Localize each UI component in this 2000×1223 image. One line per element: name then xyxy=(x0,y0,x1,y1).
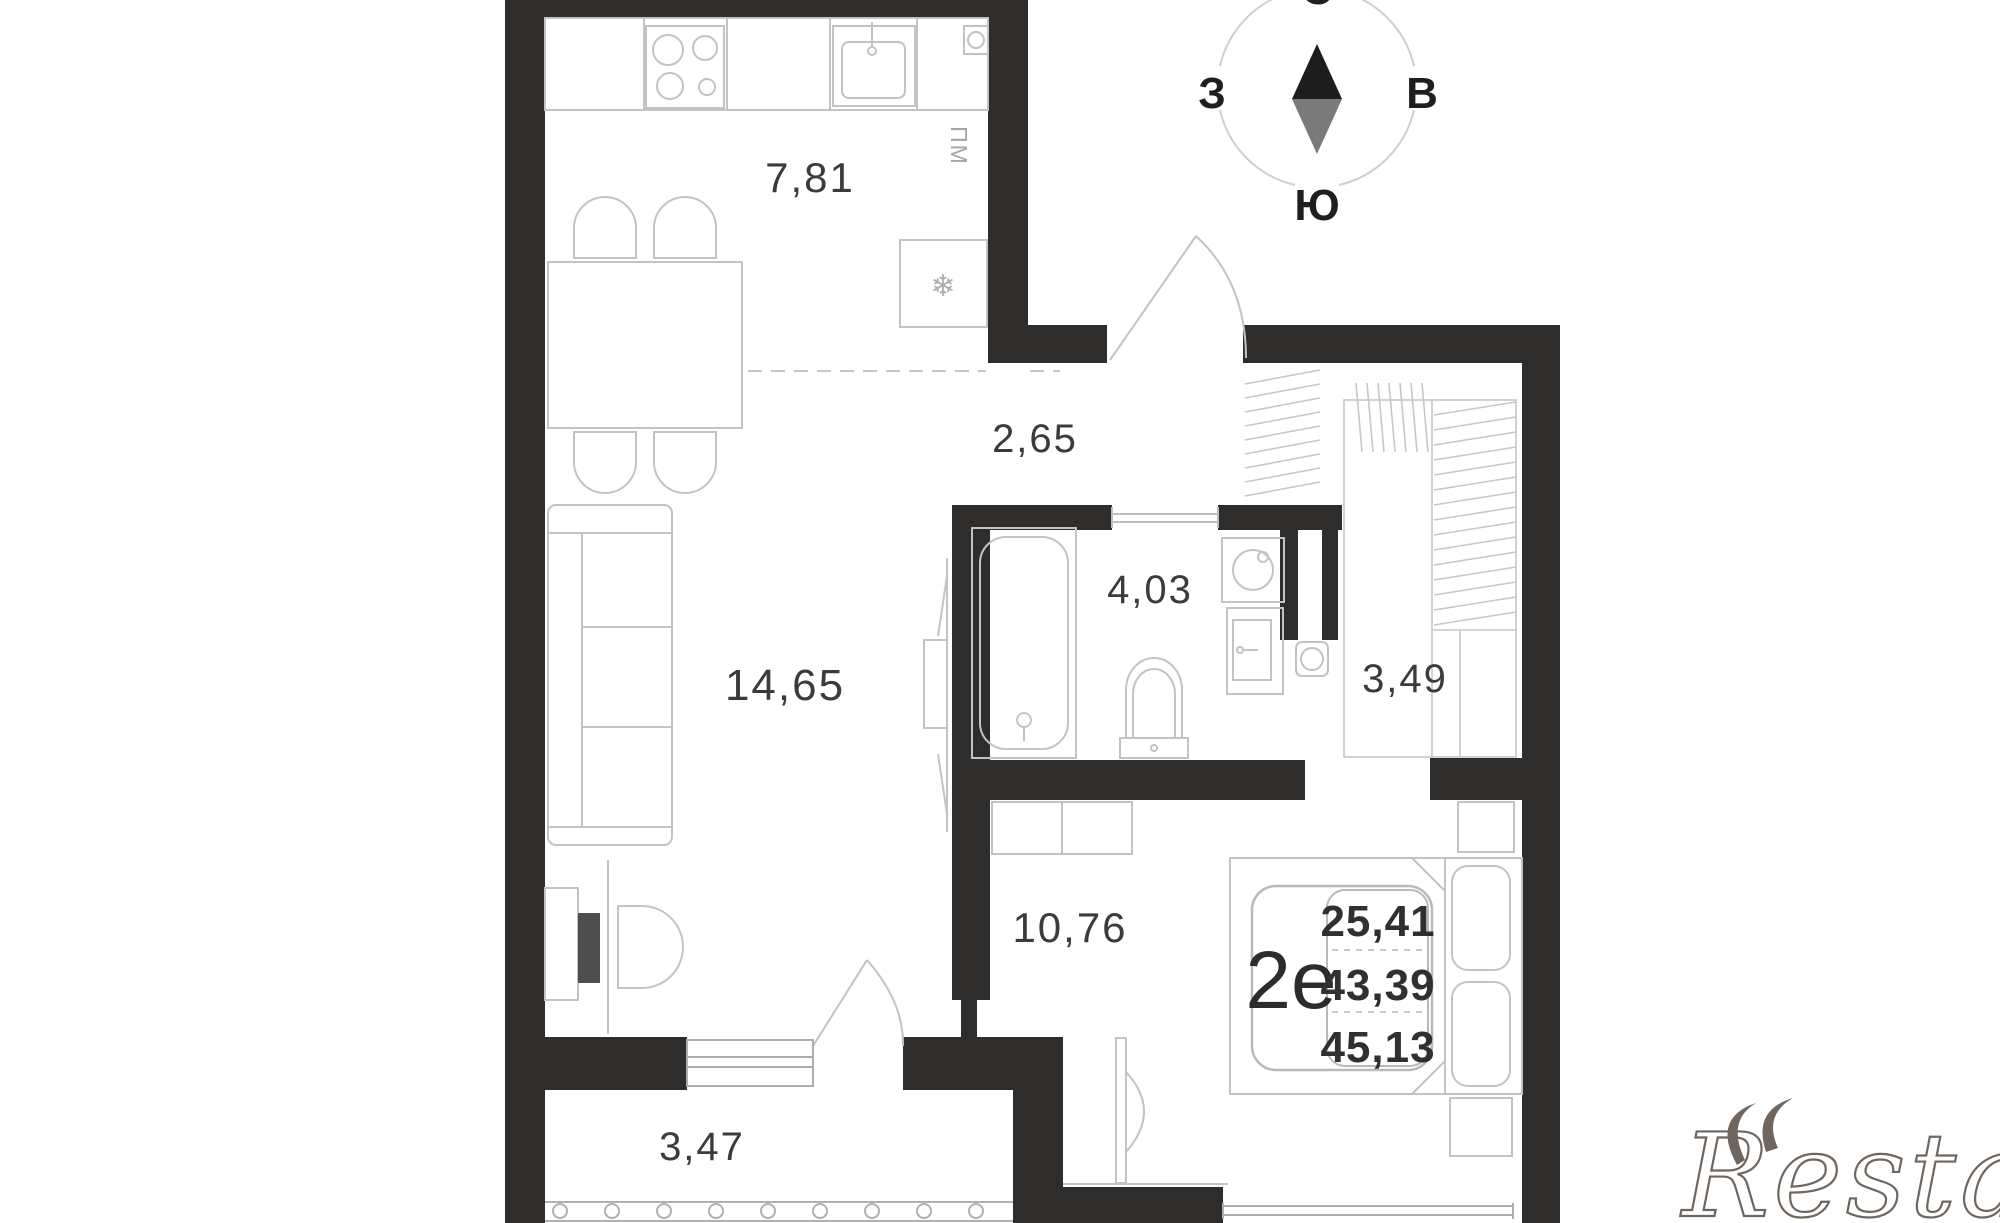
kitchen-counter xyxy=(545,18,988,110)
watermark: Restate xyxy=(1680,1098,2000,1223)
wall-living-bottom-right xyxy=(903,1037,1063,1090)
desk-chair-icon xyxy=(618,906,683,988)
wardrobe-area-label: 3,49 xyxy=(1362,657,1448,701)
compass-south-label: Ю xyxy=(1294,181,1339,230)
hallway-area-label: 2,65 xyxy=(992,417,1078,461)
pillow-icon xyxy=(1452,982,1510,1086)
monitor-icon xyxy=(578,913,600,983)
tv-icon xyxy=(924,558,947,832)
wall-outer-right xyxy=(1522,325,1560,1223)
bedroom-area-label: 10,76 xyxy=(1012,904,1127,951)
balcony-railing xyxy=(545,1202,1013,1221)
compass-needle-north xyxy=(1292,44,1342,99)
chair-icon xyxy=(574,197,636,258)
desk-icon xyxy=(545,860,683,1034)
compass-north-label: С xyxy=(1301,0,1333,14)
bathroom-sink-icon xyxy=(1227,608,1283,694)
floor-plan-svg: ❄ ПМ xyxy=(0,0,2000,1223)
wall-divider-stub xyxy=(961,1000,977,1040)
kitchen-fixtures xyxy=(545,18,988,493)
dining-table xyxy=(548,197,742,493)
wardrobe-hatch-rail xyxy=(1434,402,1516,625)
nightstand-icon xyxy=(1458,802,1514,852)
chair-icon xyxy=(574,432,636,493)
nightstand-icon xyxy=(1450,1098,1512,1156)
wall-kitchen-right xyxy=(988,0,1028,363)
wall-top-right xyxy=(1243,325,1560,363)
wall-hall-top xyxy=(988,325,1107,363)
compass-needle-south xyxy=(1292,99,1342,154)
bedroom-door xyxy=(1063,1038,1228,1184)
compass-rose: С Ю З В xyxy=(1198,0,1438,230)
unit-area-3: 45,13 xyxy=(1320,1023,1435,1072)
bathroom-area-label: 4,03 xyxy=(1107,568,1193,612)
compass-east-label: В xyxy=(1406,69,1438,118)
compass-west-label: З xyxy=(1198,69,1226,118)
chair-icon xyxy=(654,432,716,493)
floor-plan-page: ❄ ПМ xyxy=(0,0,2000,1223)
entry-door xyxy=(1110,236,1246,360)
chair-icon xyxy=(654,197,716,258)
toilet-icon xyxy=(1120,658,1188,758)
wall-alcove-drop xyxy=(1013,1090,1063,1190)
bedroom-window xyxy=(1223,1203,1513,1219)
wall-kitchen-top xyxy=(505,0,1010,18)
unit-info-badge: 2е 25,41 43,39 45,13 xyxy=(1245,886,1435,1072)
sofa-icon xyxy=(548,505,672,845)
vent-icon xyxy=(964,26,988,54)
living-room-furniture xyxy=(545,505,947,1034)
watermark-text: Restate xyxy=(1680,1109,2000,1223)
wall-wardrobe-left xyxy=(1322,518,1338,640)
hall-closet-hatch xyxy=(1245,370,1320,496)
wall-living-bottom-left xyxy=(545,1037,687,1090)
living-room-area-label: 14,65 xyxy=(725,661,845,710)
wardrobe-hatch-vertical xyxy=(1356,383,1428,452)
water-heater-icon xyxy=(1296,642,1328,676)
unit-area-2: 43,39 xyxy=(1320,961,1435,1010)
wall-bedroom-top-right xyxy=(1430,758,1522,800)
pillow-icon xyxy=(1452,866,1510,970)
bathroom-fixtures xyxy=(972,507,1328,758)
wall-bottom-band xyxy=(1013,1187,1223,1223)
washing-machine-icon xyxy=(1222,538,1284,602)
unit-area-1: 25,41 xyxy=(1320,897,1435,946)
bathroom-door-threshold xyxy=(1112,507,1218,528)
fridge-snowflake-icon: ❄ xyxy=(930,269,955,304)
stove-icon xyxy=(646,26,724,108)
dishwasher-label: ПМ xyxy=(946,126,972,166)
living-room-window xyxy=(687,1040,813,1086)
kitchen-area-label: 7,81 xyxy=(765,154,855,201)
balcony-area-label: 3,47 xyxy=(659,1125,745,1169)
sink-icon xyxy=(833,22,915,106)
wall-bedroom-top-left xyxy=(952,760,1305,800)
wall-outer-left xyxy=(505,0,545,1223)
balcony-door xyxy=(813,960,903,1046)
